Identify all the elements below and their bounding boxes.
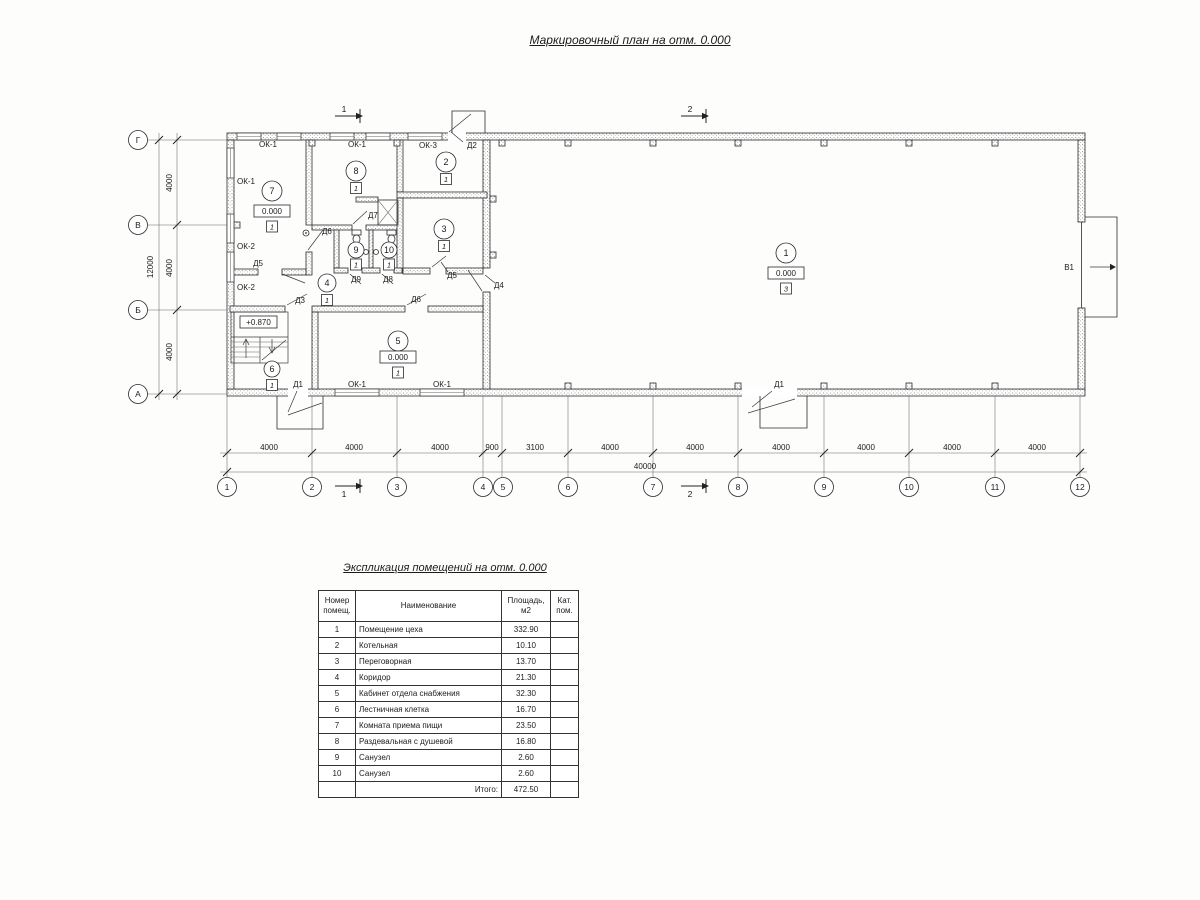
dim-bottom-6: 4000 xyxy=(686,443,704,452)
svg-text:2: 2 xyxy=(443,157,448,167)
window-ok2-left-b xyxy=(227,252,234,282)
room-9-marker: 9 1 xyxy=(348,242,364,270)
table-row: 10Санузел2.60 xyxy=(319,766,579,782)
window-ok1-left xyxy=(227,148,234,178)
section-2-top: 2 xyxy=(681,104,709,123)
dim-left-total: 12000 xyxy=(146,255,155,278)
bottom-grid: 4000 4000 4000 900 3100 4000 4000 4000 4… xyxy=(218,396,1090,497)
toilet-icon xyxy=(352,230,361,243)
window-label: ОК-1 xyxy=(348,380,367,389)
svg-text:1: 1 xyxy=(270,381,274,390)
table-row: 4Коридор21.30 xyxy=(319,670,579,686)
col-axis-bubbles: 1 2 3 4 5 6 7 8 9 10 11 12 xyxy=(218,478,1090,497)
room-markers: 1 0.000 3 2 1 3 1 4 1 5 0.000 1 +0 xyxy=(240,152,804,391)
door-label: Д8 xyxy=(383,275,393,284)
dim-left-1: 4000 xyxy=(165,259,174,277)
window-ok1-bottom-b xyxy=(420,389,464,396)
cell-category xyxy=(551,718,579,734)
table-row: 6Лестничная клетка16.70 xyxy=(319,702,579,718)
dim-labels: 4000 4000 4000 900 3100 4000 4000 4000 4… xyxy=(260,443,1046,471)
row-axis-bubbles: Г В Б А xyxy=(129,131,148,404)
svg-text:0.000: 0.000 xyxy=(262,207,283,216)
section-1-top: 1 xyxy=(335,104,363,123)
dim-bottom-0: 4000 xyxy=(260,443,278,452)
axis-bubble-col-2: 2 xyxy=(310,482,315,492)
cell-category xyxy=(551,750,579,766)
window-label: ОК-1 xyxy=(237,177,256,186)
window-label: ОК-1 xyxy=(259,140,278,149)
axis-bubble-row-b: Б xyxy=(135,305,141,315)
total-label: Итого: xyxy=(356,782,502,798)
window-ok1-top-d xyxy=(366,133,390,140)
door-label: Д1 xyxy=(774,380,784,389)
cell-category xyxy=(551,670,579,686)
toilet-icon xyxy=(387,230,396,243)
dim-bottom-10: 4000 xyxy=(1028,443,1046,452)
svg-text:9: 9 xyxy=(353,245,358,255)
dim-bottom-3: 900 xyxy=(485,443,499,452)
svg-text:0.000: 0.000 xyxy=(388,353,409,362)
svg-text:10: 10 xyxy=(384,245,394,255)
dim-bottom-9: 4000 xyxy=(943,443,961,452)
cell-category xyxy=(551,734,579,750)
door-label: Д9 xyxy=(351,275,361,284)
schedule-total-row: Итого: 472.50 xyxy=(319,782,579,798)
cell-category xyxy=(551,638,579,654)
svg-text:1: 1 xyxy=(270,223,274,232)
table-row: 7Комната приема пищи23.50 xyxy=(319,718,579,734)
window-ok1-bottom-a xyxy=(335,389,379,396)
header-room-number: Номерпомещ. xyxy=(319,591,356,622)
table-row: 5Кабинет отдела снабжения32.30 xyxy=(319,686,579,702)
door-label: Д6 xyxy=(322,227,332,236)
dim-bottom-5: 4000 xyxy=(601,443,619,452)
dim-bottom-total: 40000 xyxy=(634,462,657,471)
axis-bubble-row-a: А xyxy=(135,389,141,399)
svg-text:2: 2 xyxy=(688,104,693,114)
svg-text:6: 6 xyxy=(269,364,274,374)
svg-text:1: 1 xyxy=(342,104,347,114)
svg-text:1: 1 xyxy=(342,489,347,499)
dim-left-0: 4000 xyxy=(165,174,174,192)
axis-bubble-col-7: 7 xyxy=(651,482,656,492)
header-room-area: Площадь,м2 xyxy=(502,591,551,622)
svg-text:2: 2 xyxy=(688,489,693,499)
vent-shaft xyxy=(378,200,398,225)
svg-text:5: 5 xyxy=(395,336,400,346)
axis-bubble-col-6: 6 xyxy=(566,482,571,492)
window-label: ОК-3 xyxy=(419,141,438,150)
window-ok1-top-a xyxy=(237,133,261,140)
door-label: Д5 xyxy=(447,271,457,280)
axis-bubble-col-5: 5 xyxy=(501,482,506,492)
axis-bubble-col-4: 4 xyxy=(481,482,486,492)
room-1-marker: 1 0.000 3 xyxy=(768,243,804,294)
gate-label: В1 xyxy=(1064,263,1074,272)
axis-bubble-row-v: В xyxy=(135,220,141,230)
room-8-marker: 8 1 xyxy=(346,161,366,194)
header-room-category: Кат.пом. xyxy=(551,591,579,622)
window-label: ОК-1 xyxy=(433,380,452,389)
svg-text:1: 1 xyxy=(783,248,788,258)
cell-category xyxy=(551,702,579,718)
schedule-title: Экспликация помещений на отм. 0.000 xyxy=(300,562,590,574)
cell-category xyxy=(551,622,579,638)
svg-text:+0.870: +0.870 xyxy=(246,318,271,327)
cell-category xyxy=(551,686,579,702)
svg-text:4: 4 xyxy=(324,278,329,288)
door-label: Д2 xyxy=(467,141,477,150)
gate-v1 xyxy=(1082,217,1118,317)
axis-bubble-col-3: 3 xyxy=(395,482,400,492)
table-row: 8Раздевальная с душевой16.80 xyxy=(319,734,579,750)
room-2-marker: 2 1 xyxy=(436,152,456,185)
window-ok1-top-c xyxy=(330,133,354,140)
window-ok1-top-b xyxy=(277,133,301,140)
window-label: ОК-2 xyxy=(237,283,256,292)
dim-bottom-1: 4000 xyxy=(345,443,363,452)
axis-bubble-col-12: 12 xyxy=(1075,482,1085,492)
drawing-sheet: Маркировочный план на отм. 0.000 Эксплик… xyxy=(0,0,1200,900)
door-label: Д5 xyxy=(253,259,263,268)
stair-down-arrow xyxy=(269,339,275,353)
section-2-bottom: 2 xyxy=(681,479,709,499)
header-room-name: Наименование xyxy=(356,591,502,622)
svg-text:1: 1 xyxy=(354,261,358,270)
axis-bubble-col-8: 8 xyxy=(736,482,741,492)
total-value: 472.50 xyxy=(502,782,551,798)
dim-bottom-2: 4000 xyxy=(431,443,449,452)
cell-empty xyxy=(319,782,356,798)
schedule-table: Номерпомещ. Наименование Площадь,м2 Кат.… xyxy=(318,590,579,798)
room-10-marker: 10 1 xyxy=(381,242,397,270)
cell-category xyxy=(551,654,579,670)
section-1-bottom: 1 xyxy=(335,479,363,499)
door-label: Д1 xyxy=(293,380,303,389)
svg-text:8: 8 xyxy=(353,166,358,176)
room-4-marker: 4 1 xyxy=(318,274,336,306)
window-ok3-top xyxy=(408,133,442,140)
table-row: 2Котельная10.10 xyxy=(319,638,579,654)
dim-left-2: 4000 xyxy=(165,343,174,361)
room-5-marker: 5 0.000 1 xyxy=(380,331,416,378)
door-label: Д3 xyxy=(295,296,305,305)
schedule-header-row: Номерпомещ. Наименование Площадь,м2 Кат.… xyxy=(319,591,579,622)
axis-bubble-row-g: Г xyxy=(136,135,141,145)
left-grid: 4000 4000 4000 12000 Г В Б А xyxy=(129,131,228,404)
svg-text:1: 1 xyxy=(387,261,391,270)
svg-text:1: 1 xyxy=(444,175,448,184)
window-ok2-left-a xyxy=(227,214,234,243)
door-label: Д4 xyxy=(494,281,504,290)
room-3-marker: 3 1 xyxy=(434,219,454,252)
table-row: 9Санузел2.60 xyxy=(319,750,579,766)
floor-plan-drawing: ОК-1 ОК-1 ОК-3 Д2 ОК-1 ОК-2 ОК-2 Д5 Д6 Д… xyxy=(0,0,1200,560)
svg-text:1: 1 xyxy=(325,296,329,305)
sink-icon xyxy=(374,250,379,255)
dim-bottom-8: 4000 xyxy=(857,443,875,452)
door-label: Д6 xyxy=(411,295,421,304)
door-label: Д7 xyxy=(368,211,378,220)
svg-text:1: 1 xyxy=(354,184,358,193)
window-label: ОК-2 xyxy=(237,242,256,251)
table-row: 3Переговорная13.70 xyxy=(319,654,579,670)
axis-bubble-col-1: 1 xyxy=(225,482,230,492)
svg-text:3: 3 xyxy=(441,224,446,234)
svg-text:7: 7 xyxy=(269,186,274,196)
cell-empty xyxy=(551,782,579,798)
room-7-marker: 7 0.000 1 xyxy=(254,181,290,232)
axis-bubble-col-10: 10 xyxy=(904,482,914,492)
table-row: 1Помещение цеха332.90 xyxy=(319,622,579,638)
cell-category xyxy=(551,766,579,782)
dim-bottom-7: 4000 xyxy=(772,443,790,452)
axis-bubble-col-9: 9 xyxy=(822,482,827,492)
svg-text:0.000: 0.000 xyxy=(776,269,797,278)
window-label: ОК-1 xyxy=(348,140,367,149)
svg-text:1: 1 xyxy=(442,242,446,251)
axis-bubble-col-11: 11 xyxy=(991,482,1000,492)
dim-bottom-4: 3100 xyxy=(526,443,544,452)
svg-text:1: 1 xyxy=(396,369,400,378)
